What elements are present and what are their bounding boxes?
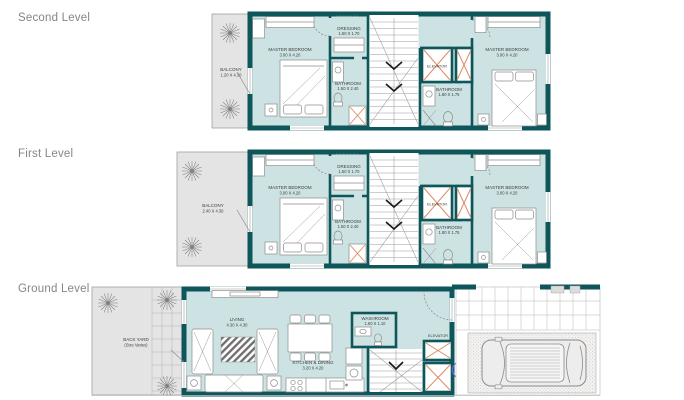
ground-level-plan: BACK YARD (Size Varies) LIVING [92,285,600,397]
ground-elevator: ELEVATOR [424,333,452,392]
balcony1-dims: 2.40 X 4.30 [203,209,225,214]
kitchen-dims: 3.20 X 4.20 [303,366,325,371]
balcony1-label: BALCONY [202,203,224,208]
kitchen-label: KITCHEN & DINING [292,360,334,365]
ground-elevator-label: ELEVATOR [428,333,448,338]
car-icon [482,337,586,389]
backyard-dims: (Size Varies) [124,343,148,348]
rug [221,337,255,362]
second-level-plan: BALCONY 1.20 X 4.30 [212,14,550,130]
living-label: LIVING [230,317,245,322]
first-level-plan: BALCONY 2.40 X 4.30 [177,152,550,268]
floorplan-canvas: ELEVATOR [0,0,684,400]
balcony2-label: BALCONY [220,67,242,72]
washroom-dims: 1.60 X 1.10 [365,321,387,326]
back-yard: BACK YARD (Size Varies) [92,287,184,396]
ground-staircase [368,347,422,394]
washroom: WASHROOM 1.60 X 1.10 [352,313,396,347]
living-dims: 4.30 X 4.30 [227,323,249,328]
dining-set [288,315,332,361]
backyard-label: BACK YARD [123,337,149,342]
